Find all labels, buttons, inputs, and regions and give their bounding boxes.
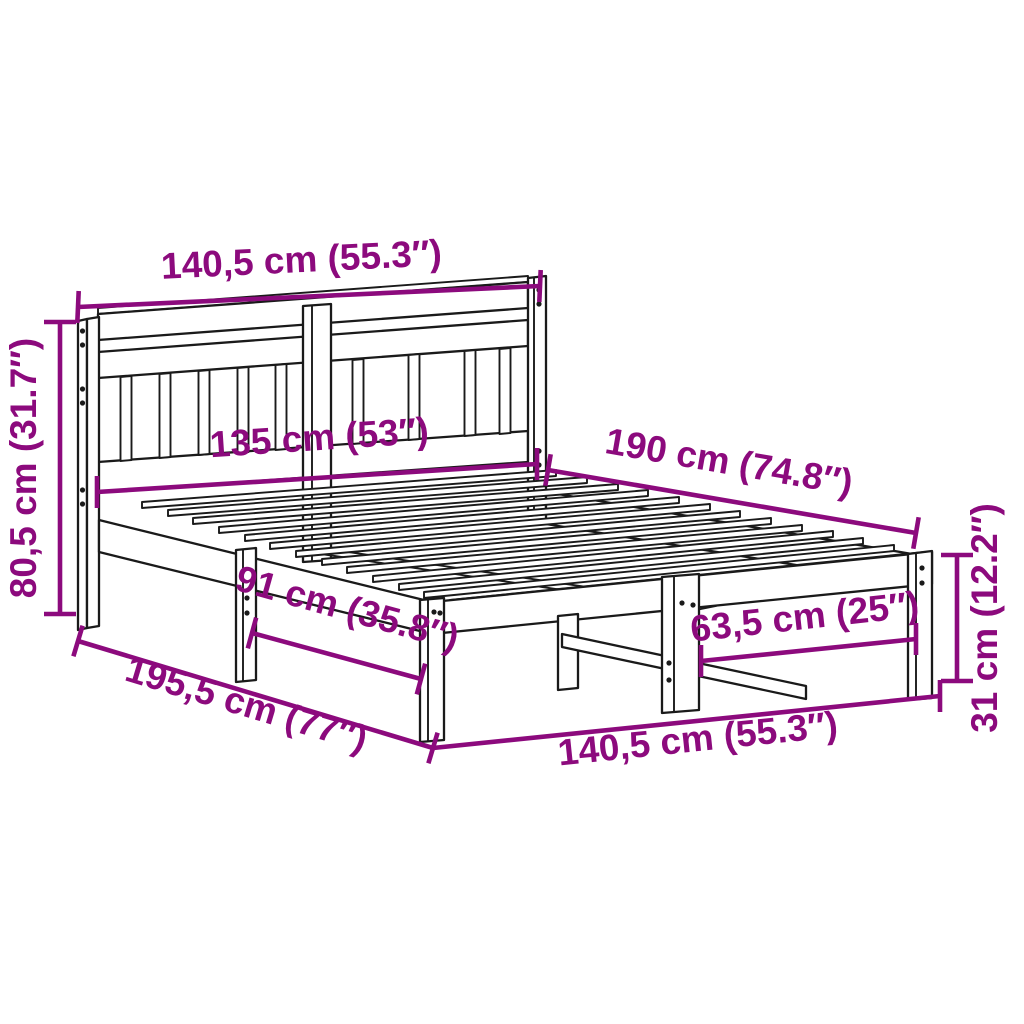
- headboard-slat: [199, 370, 210, 455]
- bed-frame-dimension-diagram: 140,5 cm (55.3″) 80,5 cm (31.7″) 135 cm …: [0, 0, 1024, 1024]
- dimension-label: 140,5 cm (55.3″): [556, 704, 840, 774]
- dimension-label: 31 cm (12.2″): [964, 503, 1005, 733]
- headboard-slat: [121, 376, 132, 461]
- headboard-slat: [500, 348, 511, 434]
- front-right-leg: [908, 551, 932, 700]
- dimension-headboard-height: 80,5 cm (31.7″): [3, 322, 76, 614]
- dimension-label: 140,5 cm (55.3″): [160, 232, 443, 287]
- diagram-canvas: 140,5 cm (55.3″) 80,5 cm (31.7″) 135 cm …: [0, 0, 1024, 1024]
- center-rear-leg: [558, 614, 578, 690]
- headboard-left-post: [78, 317, 99, 630]
- dimension-frame-height: 31 cm (12.2″): [941, 503, 1005, 733]
- headboard-slat: [465, 350, 476, 436]
- headboard-slat: [160, 373, 171, 458]
- dimension-label: 80,5 cm (31.7″): [3, 338, 44, 598]
